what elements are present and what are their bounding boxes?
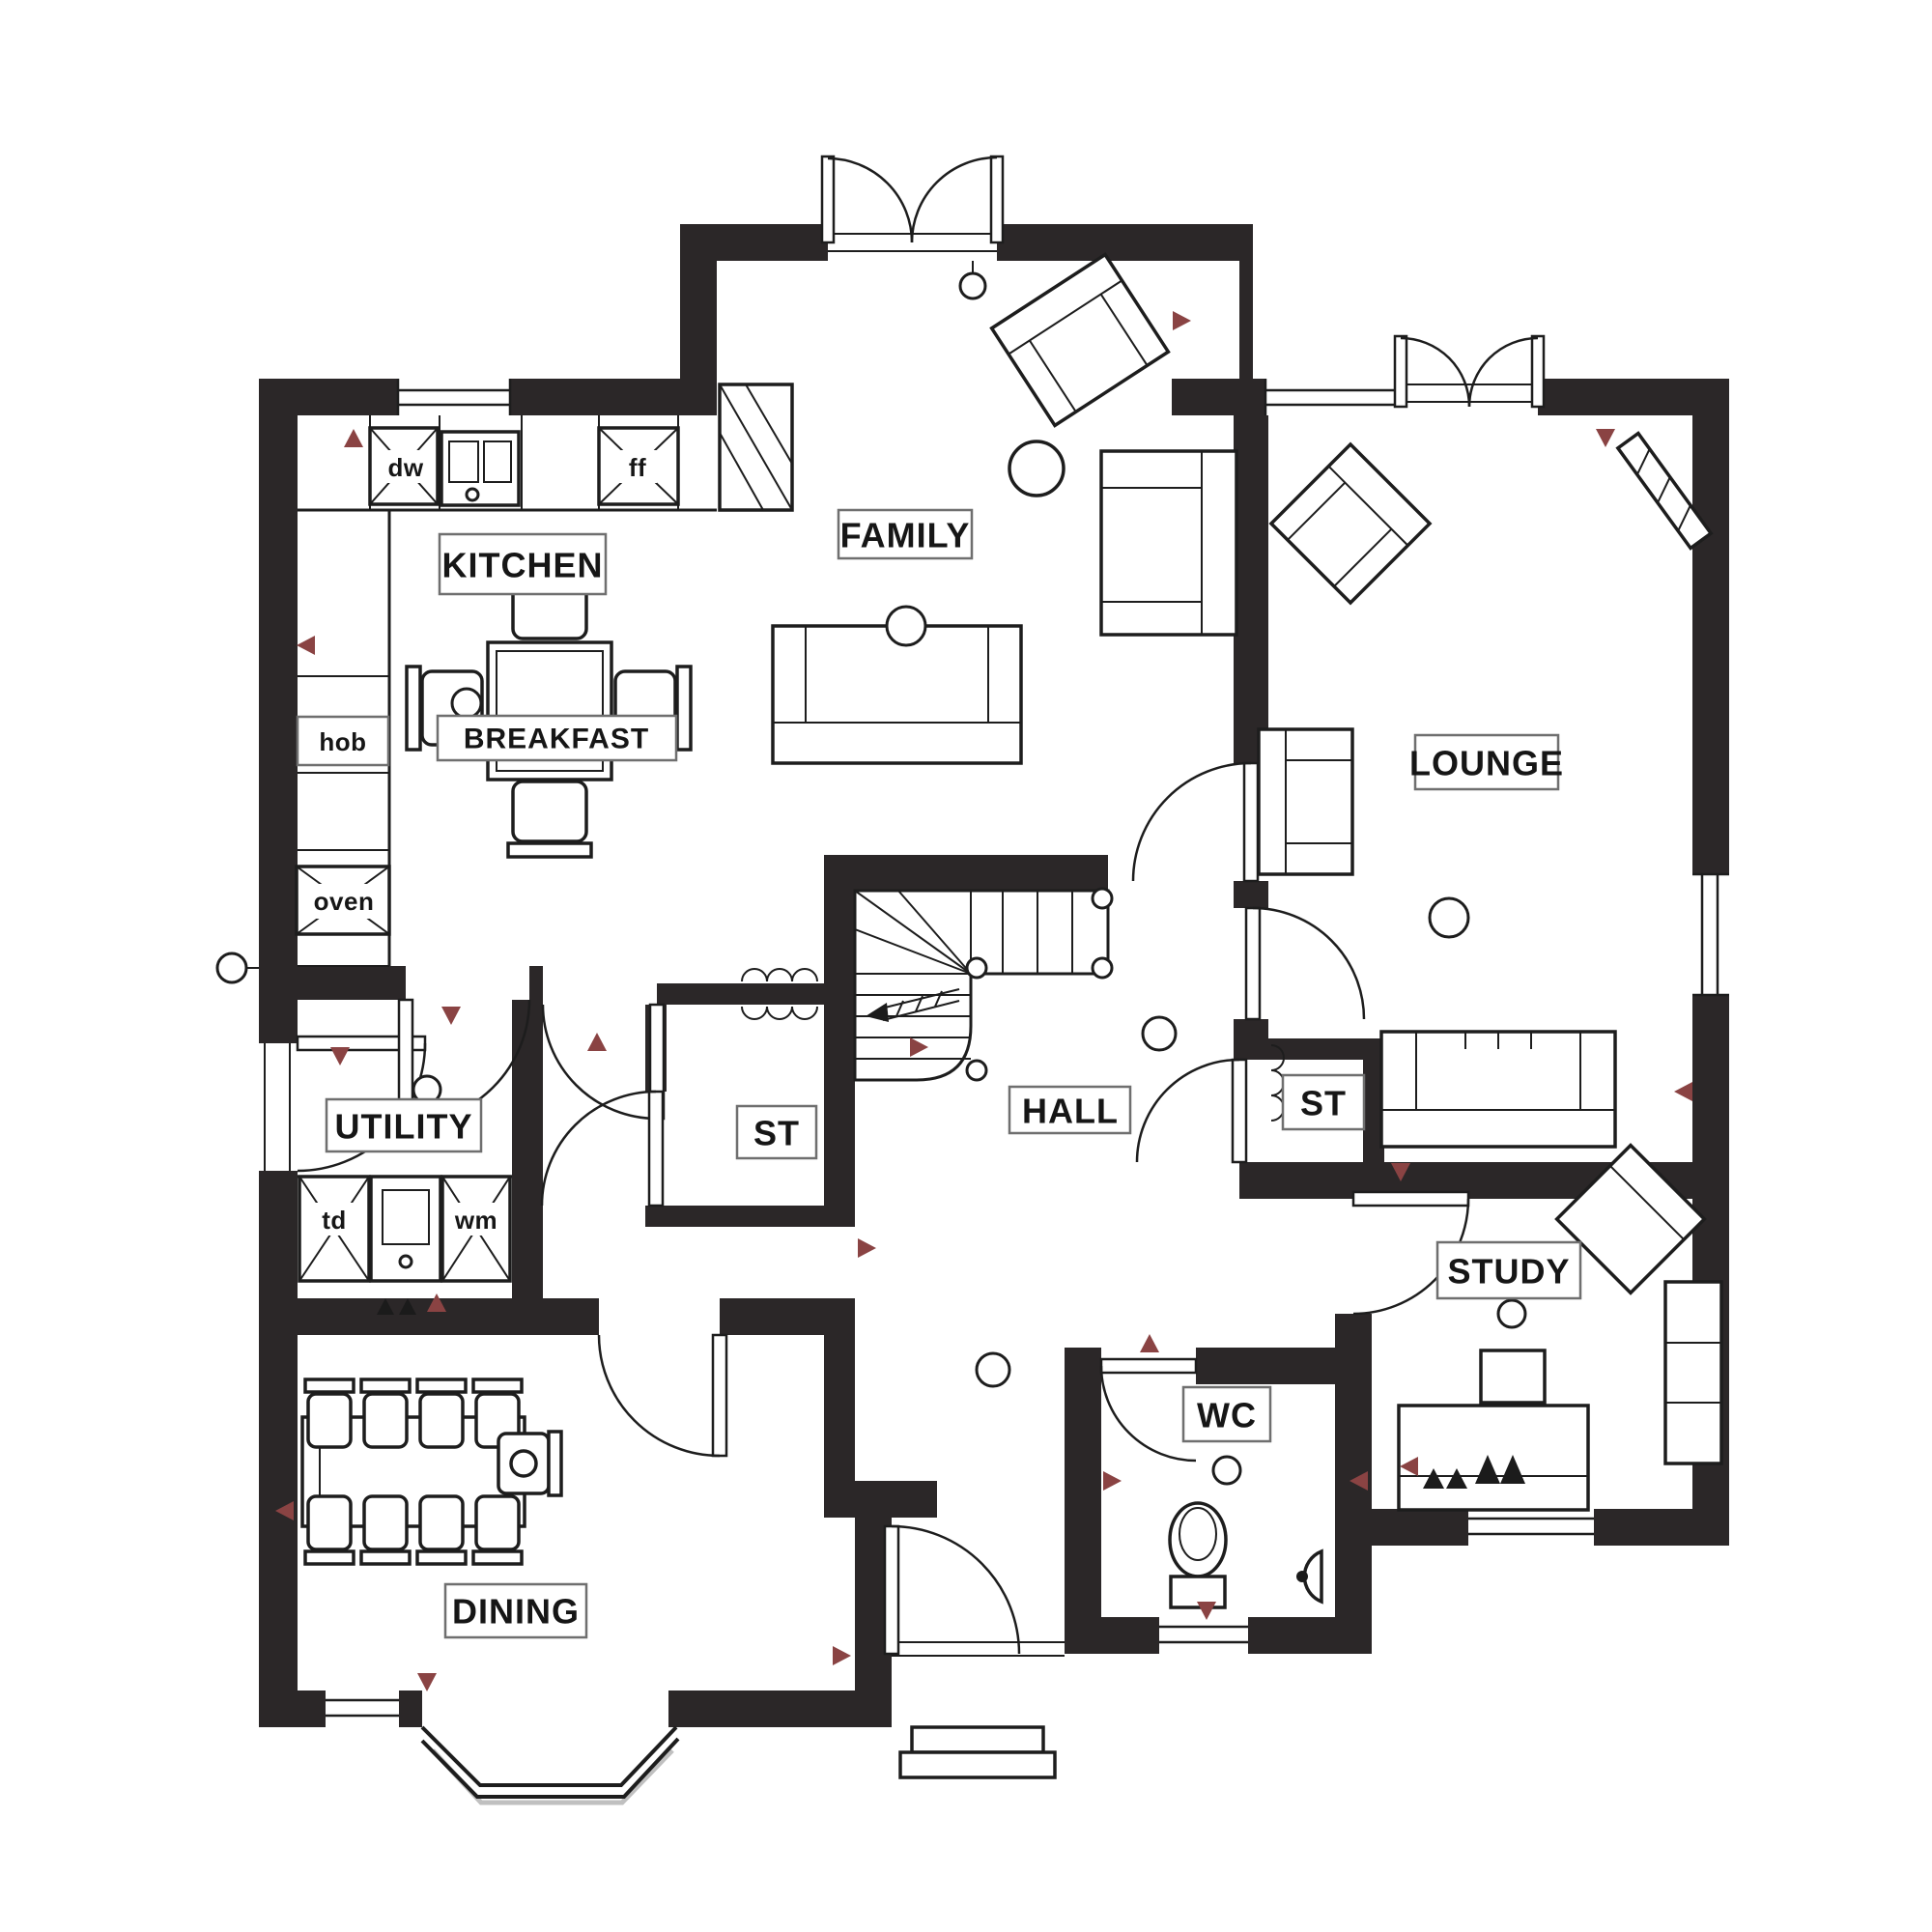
dining-carver-chair bbox=[498, 1432, 561, 1495]
family-sofa-2 bbox=[1101, 451, 1236, 635]
dishwasher-label: dw bbox=[387, 453, 423, 482]
toilet bbox=[1170, 1503, 1226, 1607]
wc-door bbox=[1101, 1359, 1196, 1461]
hob-label: hob bbox=[319, 727, 366, 756]
dining-door bbox=[599, 1335, 726, 1456]
store-left-door bbox=[542, 1092, 663, 1206]
family-armchair bbox=[992, 255, 1169, 426]
family-hall-door bbox=[1133, 763, 1258, 881]
basin bbox=[1296, 1551, 1321, 1602]
wc-window bbox=[1159, 1617, 1248, 1654]
lounge-right-window bbox=[1692, 874, 1729, 995]
dining-set bbox=[302, 1379, 561, 1564]
newel-post bbox=[967, 958, 986, 978]
breakfast-label: BREAKFAST bbox=[464, 724, 649, 755]
lounge-sofa-wide bbox=[1381, 1032, 1615, 1147]
lounge-door bbox=[1246, 908, 1364, 1019]
bookcase bbox=[1665, 1282, 1721, 1463]
kitchen-sink bbox=[441, 432, 519, 505]
front-door bbox=[885, 1526, 1065, 1777]
newel-post bbox=[967, 1061, 986, 1080]
lounge-sofa-left bbox=[1259, 729, 1352, 874]
dining-window bbox=[326, 1690, 399, 1727]
kitchen-window bbox=[398, 379, 510, 415]
newel-post bbox=[1093, 889, 1112, 908]
staircase bbox=[855, 889, 1112, 1080]
porch-step-2 bbox=[900, 1752, 1055, 1777]
utility-label: UTILITY bbox=[335, 1107, 473, 1147]
wc-fixtures bbox=[1170, 1503, 1321, 1607]
breakfast-set bbox=[407, 563, 691, 857]
family-sofa bbox=[773, 607, 1021, 763]
french-doors-lounge bbox=[1395, 336, 1544, 407]
lounge-label: LOUNGE bbox=[1409, 744, 1564, 783]
porch-step bbox=[912, 1727, 1043, 1752]
ground-floor-plan: KITCHEN BREAKFAST FAMILY LOUNGE UTILITY … bbox=[0, 0, 1932, 1932]
newel-post bbox=[1093, 958, 1112, 978]
study-window bbox=[1468, 1509, 1594, 1546]
lounge-armchair bbox=[1271, 444, 1430, 603]
fridge-freezer-label: ff bbox=[629, 453, 646, 482]
wc-label: WC bbox=[1197, 1396, 1257, 1435]
study-label: STUDY bbox=[1447, 1252, 1570, 1292]
utility-sink bbox=[371, 1177, 440, 1281]
family-label: FAMILY bbox=[840, 516, 971, 555]
lounge-top-window bbox=[1265, 379, 1401, 415]
oven-label: oven bbox=[314, 887, 375, 916]
french-doors-family bbox=[822, 156, 1003, 251]
floor-plan-page: KITCHEN BREAKFAST FAMILY LOUNGE UTILITY … bbox=[0, 0, 1932, 1932]
family-side-table bbox=[1009, 441, 1064, 496]
store-right-door bbox=[1137, 1060, 1246, 1162]
bay-window bbox=[422, 1727, 678, 1803]
store-left-label: ST bbox=[753, 1114, 800, 1153]
dining-label: DINING bbox=[452, 1592, 580, 1632]
store-right-label: ST bbox=[1300, 1084, 1347, 1123]
kitchen-label: KITCHEN bbox=[442, 546, 604, 585]
hall-label: HALL bbox=[1022, 1092, 1119, 1131]
corner-larder bbox=[720, 384, 792, 510]
tumble-dryer-label: td bbox=[322, 1206, 347, 1235]
washing-machine-label: wm bbox=[454, 1206, 497, 1235]
